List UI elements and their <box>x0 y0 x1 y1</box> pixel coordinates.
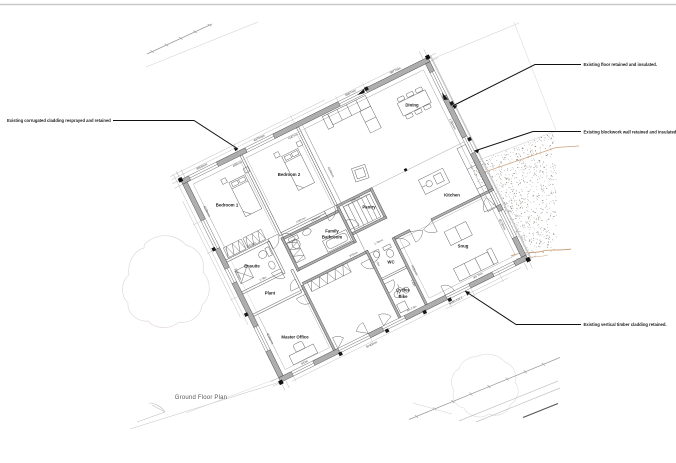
svg-text:Master Office: Master Office <box>281 335 309 340</box>
svg-text:Dining: Dining <box>405 103 419 108</box>
svg-text:Ensuite: Ensuite <box>244 264 260 269</box>
svg-text:Snug: Snug <box>458 244 469 249</box>
svg-text:Ground Floor Plan: Ground Floor Plan <box>175 395 227 401</box>
svg-text:Bike: Bike <box>398 294 408 299</box>
svg-text:WC: WC <box>387 260 394 265</box>
svg-text:Family: Family <box>325 229 339 234</box>
svg-text:Kitchen: Kitchen <box>444 193 460 198</box>
svg-text:Bedroom 2: Bedroom 2 <box>278 172 301 177</box>
svg-text:Existing blockwork wall retain: Existing blockwork wall retained and ins… <box>584 129 676 134</box>
svg-text:Existing floor retained and in: Existing floor retained and insulated. <box>584 62 658 67</box>
svg-text:Existing vertical timber cladd: Existing vertical timber cladding retain… <box>584 322 667 327</box>
svg-text:Bedroom 1: Bedroom 1 <box>216 203 239 208</box>
svg-text:Plant: Plant <box>265 291 276 296</box>
svg-text:Existing corrugated cladding r: Existing corrugated cladding resprayed a… <box>7 118 111 123</box>
svg-text:Bathroom: Bathroom <box>322 235 342 240</box>
svg-text:Cycles: Cycles <box>396 288 410 293</box>
svg-text:Pantry: Pantry <box>362 205 376 210</box>
